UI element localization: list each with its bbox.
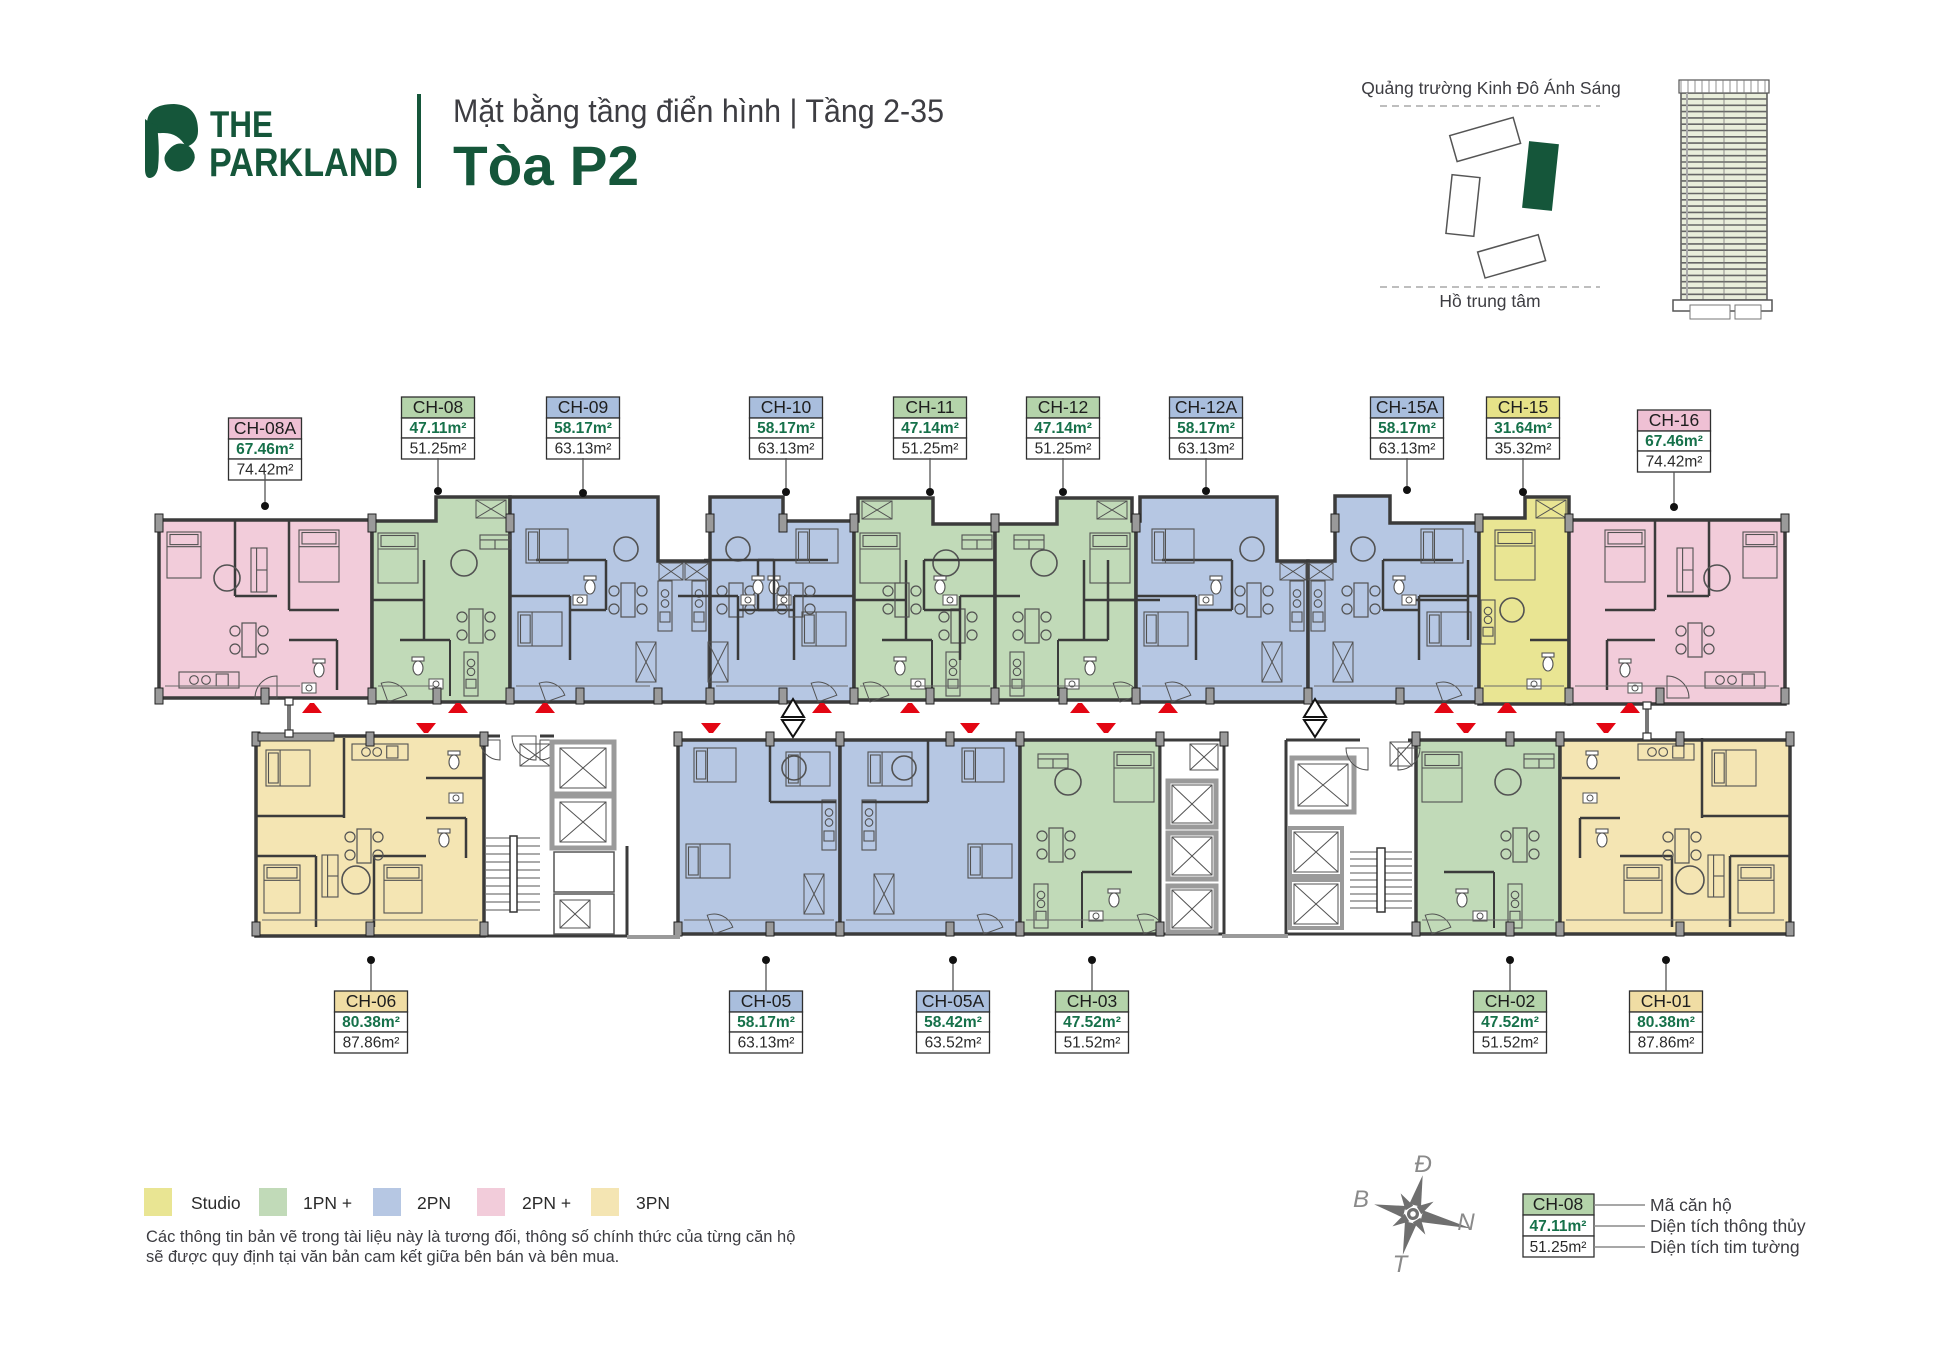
svg-text:47.52m²: 47.52m² bbox=[1481, 1014, 1539, 1031]
svg-text:51.25m²: 51.25m² bbox=[1035, 441, 1092, 458]
svg-text:67.46m²: 67.46m² bbox=[236, 441, 294, 458]
svg-text:63.13m²: 63.13m² bbox=[555, 441, 612, 458]
svg-text:47.11m²: 47.11m² bbox=[1530, 1218, 1587, 1235]
svg-text:Hồ trung tâm: Hồ trung tâm bbox=[1439, 291, 1540, 311]
svg-text:63.13m²: 63.13m² bbox=[758, 441, 815, 458]
svg-text:CH-16: CH-16 bbox=[1649, 410, 1700, 430]
svg-text:CH-08: CH-08 bbox=[413, 397, 464, 417]
svg-text:PARKLAND: PARKLAND bbox=[209, 141, 398, 185]
svg-text:Mặt bằng tầng điển hình | Tầng: Mặt bằng tầng điển hình | Tầng 2-35 bbox=[453, 93, 944, 129]
svg-text:80.38m²: 80.38m² bbox=[1637, 1014, 1695, 1031]
svg-text:THE: THE bbox=[210, 104, 273, 145]
svg-text:80.38m²: 80.38m² bbox=[342, 1014, 400, 1031]
svg-text:58.17m²: 58.17m² bbox=[737, 1014, 795, 1031]
svg-text:58.42m²: 58.42m² bbox=[924, 1014, 982, 1031]
svg-text:47.14m²: 47.14m² bbox=[901, 420, 959, 437]
svg-text:51.52m²: 51.52m² bbox=[1064, 1035, 1121, 1052]
svg-text:CH-06: CH-06 bbox=[346, 991, 397, 1011]
svg-text:2PN +: 2PN + bbox=[522, 1193, 571, 1213]
svg-text:58.17m²: 58.17m² bbox=[554, 420, 612, 437]
svg-text:CH-02: CH-02 bbox=[1485, 991, 1536, 1011]
svg-text:35.32m²: 35.32m² bbox=[1495, 441, 1552, 458]
svg-text:51.25m²: 51.25m² bbox=[1530, 1239, 1587, 1256]
svg-text:CH-12: CH-12 bbox=[1038, 397, 1089, 417]
svg-text:63.52m²: 63.52m² bbox=[925, 1035, 982, 1052]
svg-text:31.64m²: 31.64m² bbox=[1494, 420, 1552, 437]
svg-text:58.17m²: 58.17m² bbox=[757, 420, 815, 437]
svg-text:87.86m²: 87.86m² bbox=[343, 1035, 400, 1052]
svg-text:Đ: Đ bbox=[1414, 1151, 1431, 1178]
svg-text:Mã căn hộ: Mã căn hộ bbox=[1650, 1195, 1732, 1215]
svg-text:47.14m²: 47.14m² bbox=[1034, 420, 1092, 437]
svg-text:58.17m²: 58.17m² bbox=[1177, 420, 1235, 437]
svg-text:51.25m²: 51.25m² bbox=[410, 441, 467, 458]
svg-text:74.42m²: 74.42m² bbox=[1646, 454, 1703, 471]
svg-text:Tòa P2: Tòa P2 bbox=[453, 134, 639, 197]
svg-text:47.11m²: 47.11m² bbox=[410, 420, 467, 437]
svg-text:1PN +: 1PN + bbox=[303, 1193, 352, 1213]
svg-text:Diện tích thông thủy: Diện tích thông thủy bbox=[1650, 1216, 1806, 1236]
svg-text:CH-15: CH-15 bbox=[1498, 397, 1549, 417]
svg-text:CH-08A: CH-08A bbox=[234, 418, 297, 438]
svg-text:CH-03: CH-03 bbox=[1067, 991, 1118, 1011]
svg-text:CH-01: CH-01 bbox=[1641, 991, 1692, 1011]
svg-text:T: T bbox=[1393, 1251, 1410, 1278]
svg-text:63.13m²: 63.13m² bbox=[1178, 441, 1235, 458]
svg-text:2PN: 2PN bbox=[417, 1193, 451, 1213]
svg-text:58.17m²: 58.17m² bbox=[1378, 420, 1436, 437]
svg-text:sẽ được quy định tại văn bản c: sẽ được quy định tại văn bản cam kết giữ… bbox=[146, 1248, 619, 1266]
svg-text:63.13m²: 63.13m² bbox=[1379, 441, 1436, 458]
svg-text:Quảng trường Kinh Đô Ánh Sáng: Quảng trường Kinh Đô Ánh Sáng bbox=[1361, 78, 1621, 98]
svg-text:Các thông tin bản vẽ trong tài: Các thông tin bản vẽ trong tài liệu này … bbox=[146, 1228, 795, 1246]
svg-text:47.52m²: 47.52m² bbox=[1063, 1014, 1121, 1031]
svg-text:Diện tích tim tường: Diện tích tim tường bbox=[1650, 1237, 1800, 1257]
svg-text:3PN: 3PN bbox=[636, 1193, 670, 1213]
svg-text:51.25m²: 51.25m² bbox=[902, 441, 959, 458]
svg-text:CH-05: CH-05 bbox=[741, 991, 792, 1011]
svg-text:51.52m²: 51.52m² bbox=[1482, 1035, 1539, 1052]
svg-text:CH-09: CH-09 bbox=[558, 397, 609, 417]
svg-text:CH-05A: CH-05A bbox=[922, 991, 985, 1011]
svg-text:CH-08: CH-08 bbox=[1533, 1194, 1584, 1214]
svg-text:67.46m²: 67.46m² bbox=[1645, 433, 1703, 450]
svg-text:CH-12A: CH-12A bbox=[1175, 397, 1238, 417]
svg-text:N: N bbox=[1457, 1209, 1475, 1236]
svg-text:CH-15A: CH-15A bbox=[1376, 397, 1439, 417]
svg-text:Studio: Studio bbox=[191, 1193, 241, 1213]
svg-text:87.86m²: 87.86m² bbox=[1638, 1035, 1695, 1052]
svg-text:CH-11: CH-11 bbox=[905, 397, 954, 417]
svg-text:B: B bbox=[1353, 1186, 1369, 1213]
svg-text:CH-10: CH-10 bbox=[761, 397, 812, 417]
svg-text:63.13m²: 63.13m² bbox=[738, 1035, 795, 1052]
